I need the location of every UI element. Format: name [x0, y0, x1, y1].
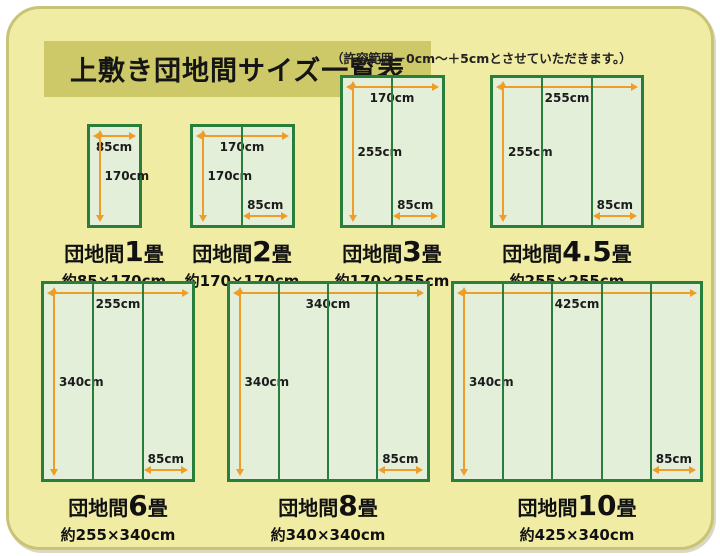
height-label: 255cm — [508, 145, 553, 159]
single-mat-width-arrow-icon — [654, 469, 694, 471]
single-mat-width-label: 85cm — [595, 198, 635, 212]
height-arrow-icon — [99, 132, 101, 220]
diagram-cell: 255cm 340cm 85cm 団地間6畳 約255×340cm — [39, 281, 197, 545]
caption-suffix: 畳 — [422, 242, 442, 266]
mat-diagram: 85cm 170cm — [87, 124, 142, 228]
mat-diagram: 255cm 255cm 85cm — [490, 75, 644, 228]
single-mat-width-arrow-icon — [595, 215, 635, 217]
caption-suffix: 畳 — [272, 242, 292, 266]
width-arrow-icon — [49, 292, 187, 294]
single-mat-width-label: 85cm — [395, 198, 436, 212]
height-arrow-icon — [202, 132, 204, 220]
diagram-cell: 170cm 255cm 85cm 団地間3畳 約170×255cm — [327, 75, 457, 291]
width-arrow-icon — [498, 86, 636, 88]
tolerance-note: （許容範囲－0cm～＋5cmとさせていただきます。） — [331, 48, 632, 67]
diagram-subtitle: 約425×340cm — [520, 524, 635, 545]
diagram-subtitle: 約255×340cm — [61, 524, 176, 545]
single-mat-width-arrow-icon — [146, 469, 186, 471]
caption-number: 2 — [252, 235, 271, 268]
diagram-caption: 団地間4.5畳 — [502, 237, 632, 268]
mat-divider — [327, 284, 329, 479]
diagram-row-bottom: 255cm 340cm 85cm 団地間6畳 約255×340cm 340cm … — [9, 281, 711, 545]
width-label: 85cm — [90, 140, 139, 154]
caption-number: 8 — [338, 489, 357, 522]
diagram-caption: 団地間2畳 — [192, 237, 291, 268]
width-label: 425cm — [454, 297, 700, 311]
diagram-caption: 団地間3畳 — [342, 237, 441, 268]
height-label: 170cm — [208, 169, 253, 183]
mat-diagram: 255cm 340cm 85cm — [41, 281, 195, 482]
single-mat-width-arrow-icon — [245, 215, 286, 217]
mat-divider — [278, 284, 280, 479]
height-label: 340cm — [245, 375, 290, 389]
diagram-cell: 170cm 170cm 85cm 団地間2畳 約170×170cm — [179, 124, 305, 291]
mat-divider — [541, 78, 543, 225]
mat-divider — [591, 78, 593, 225]
diagram-caption: 団地間8畳 — [278, 491, 377, 522]
height-label: 255cm — [358, 145, 403, 159]
mat-divider — [601, 284, 603, 479]
mat-divider — [241, 127, 243, 225]
caption-prefix: 団地間 — [342, 242, 402, 266]
caption-prefix: 団地間 — [518, 496, 578, 520]
caption-suffix: 畳 — [144, 242, 164, 266]
mat-divider — [92, 284, 94, 479]
caption-number: 10 — [578, 489, 617, 522]
diagram-caption: 団地間1畳 — [64, 237, 163, 268]
height-arrow-icon — [53, 289, 55, 474]
height-arrow-icon — [463, 289, 465, 474]
caption-prefix: 団地間 — [192, 242, 252, 266]
diagram-caption: 団地間6畳 — [68, 491, 167, 522]
single-mat-width-label: 85cm — [654, 452, 694, 466]
diagram-cell: 340cm 340cm 85cm 団地間8畳 約340×340cm — [225, 281, 431, 545]
single-mat-width-arrow-icon — [380, 469, 420, 471]
mat-divider — [502, 284, 504, 479]
width-label: 255cm — [44, 297, 192, 311]
caption-number: 4.5 — [562, 235, 612, 268]
height-label: 340cm — [59, 375, 104, 389]
caption-number: 1 — [124, 235, 143, 268]
mat-diagram: 425cm 340cm 85cm — [451, 281, 703, 482]
size-chart-panel: 上敷き団地間サイズ一覧表 （許容範囲－0cm～＋5cmとさせていただきます。） … — [6, 6, 714, 550]
height-arrow-icon — [239, 289, 241, 474]
height-label: 170cm — [105, 169, 150, 183]
single-mat-width-arrow-icon — [395, 215, 436, 217]
width-label: 255cm — [493, 91, 641, 105]
diagram-row-top: 85cm 170cm 団地間1畳 約85×170cm 170cm 170cm 8… — [9, 75, 711, 291]
caption-number: 3 — [402, 235, 421, 268]
mat-diagram: 340cm 340cm 85cm — [227, 281, 430, 482]
diagram-cell: 255cm 255cm 85cm 団地間4.5畳 約255×255cm — [483, 75, 651, 291]
single-mat-width-label: 85cm — [380, 452, 420, 466]
caption-suffix: 畳 — [616, 496, 636, 520]
caption-suffix: 畳 — [358, 496, 378, 520]
caption-prefix: 団地間 — [64, 242, 124, 266]
mat-divider — [650, 284, 652, 479]
mat-divider — [551, 284, 553, 479]
height-label: 340cm — [469, 375, 514, 389]
caption-number: 6 — [128, 489, 147, 522]
diagram-cell: 425cm 340cm 85cm 団地間10畳 約425×340cm — [451, 281, 703, 545]
caption-prefix: 団地間 — [68, 496, 128, 520]
mat-diagram: 170cm 255cm 85cm — [340, 75, 445, 228]
mat-diagram: 170cm 170cm 85cm — [190, 124, 295, 228]
mat-divider — [142, 284, 144, 479]
height-arrow-icon — [502, 83, 504, 220]
caption-suffix: 畳 — [148, 496, 168, 520]
single-mat-width-label: 85cm — [146, 452, 186, 466]
diagram-caption: 団地間10畳 — [518, 491, 637, 522]
height-arrow-icon — [352, 83, 354, 220]
diagram-subtitle: 約340×340cm — [271, 524, 386, 545]
single-mat-width-label: 85cm — [245, 198, 286, 212]
mat-divider — [376, 284, 378, 479]
page: 上敷き団地間サイズ一覧表 （許容範囲－0cm～＋5cmとさせていただきます。） … — [0, 0, 720, 556]
caption-suffix: 畳 — [612, 242, 632, 266]
caption-prefix: 団地間 — [502, 242, 562, 266]
mat-divider — [391, 78, 393, 225]
caption-prefix: 団地間 — [278, 496, 338, 520]
diagram-cell: 85cm 170cm 団地間1畳 約85×170cm — [55, 124, 173, 291]
width-arrow-icon — [459, 292, 695, 294]
